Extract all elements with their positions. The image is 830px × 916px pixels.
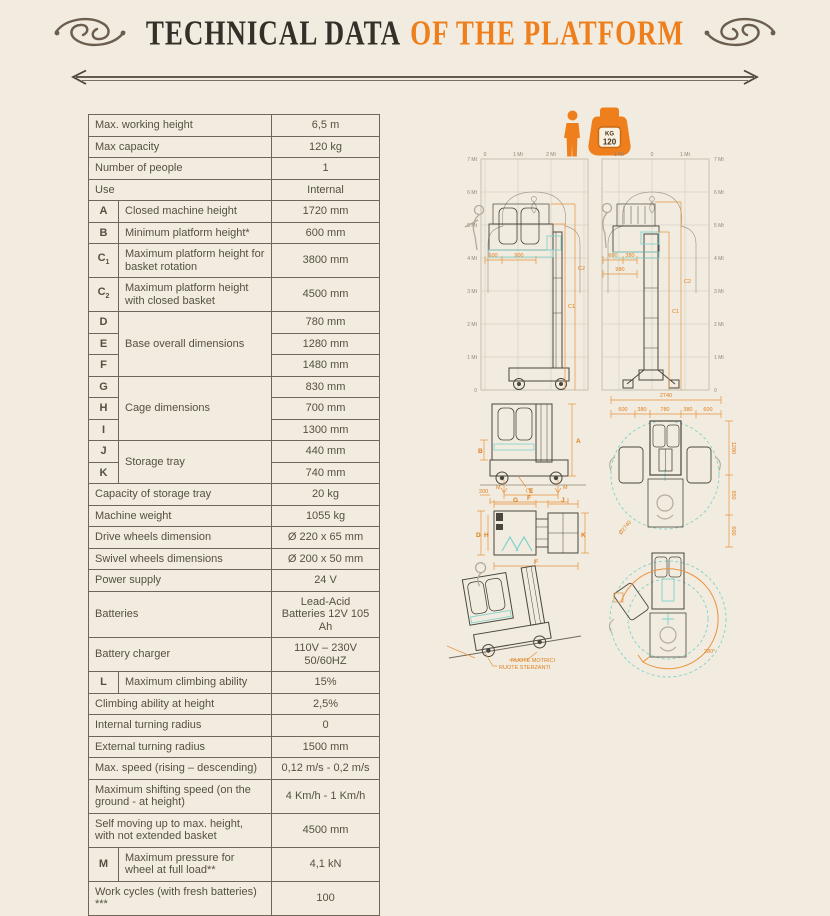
scale-labels: 0 1 Mt 2 Mt 7 Mt 6 Mt 5 Mt 4 Mt 3 Mt 2 M…	[467, 152, 556, 394]
dim-label: C1	[672, 309, 679, 315]
row-value: 700 mm	[272, 398, 380, 420]
flourish-right-icon	[700, 14, 780, 52]
row-value: 440 mm	[272, 441, 380, 463]
svg-text:6 Mt: 6 Mt	[467, 190, 477, 196]
elevation-side-diagram: 0 1 Mt 2 Mt 7 Mt 6 Mt 5 Mt 4 Mt 3 Mt 2 M…	[455, 148, 595, 400]
spec-row: Capacity of storage tray20 kg	[89, 484, 380, 506]
spec-row: AClosed machine height1720 mm	[89, 201, 380, 223]
row-label: Battery charger	[89, 638, 272, 672]
rotation-angle-label: 280°	[704, 649, 715, 655]
dim-label: 600	[608, 253, 617, 259]
row-letter: C2	[89, 278, 119, 312]
row-label: Batteries	[89, 591, 272, 638]
grid	[481, 159, 588, 390]
row-label: Max. speed (rising – descending)	[89, 758, 272, 780]
dim-label: G	[513, 497, 518, 504]
spec-row: Climbing ability at height2,5%	[89, 693, 380, 715]
machine-front-drawing	[603, 204, 680, 389]
row-label: Self moving up to max. height, with not …	[89, 813, 272, 847]
svg-text:4 Mt: 4 Mt	[467, 256, 477, 262]
machine-side-drawing	[465, 204, 569, 390]
spec-row: Maximum shifting speed (on the ground - …	[89, 779, 380, 813]
spec-row: Power supply24 V	[89, 570, 380, 592]
row-label: Power supply	[89, 570, 272, 592]
dim-label: 980	[615, 267, 624, 273]
row-value: 780 mm	[272, 312, 380, 334]
row-value: 1480 mm	[272, 355, 380, 377]
row-value: 740 mm	[272, 462, 380, 484]
front-view-diagram: A B M M (*) 200 E F	[478, 396, 590, 504]
dim-label: 380	[683, 407, 692, 413]
row-value: 0	[272, 715, 380, 737]
spec-row: C2Maximum platform height with closed ba…	[89, 278, 380, 312]
row-value: 1280 mm	[272, 333, 380, 355]
spec-row: Swivel wheels dimensionsØ 200 x 50 mm	[89, 548, 380, 570]
spec-row: Max. working height6,5 m	[89, 115, 380, 137]
row-value: Lead-Acid Batteries 12V 105 Ah	[272, 591, 380, 638]
spec-row: DBase overall dimensions780 mm	[89, 312, 380, 334]
grid	[602, 159, 709, 390]
row-label: Work cycles (with fresh batteries) ***	[89, 881, 272, 915]
divider-arrow-line	[60, 68, 770, 88]
row-label: Drive wheels dimension	[89, 527, 272, 549]
svg-text:1 Mt: 1 Mt	[467, 355, 477, 361]
svg-text:3 Mt: 3 Mt	[467, 289, 477, 295]
row-label: Storage tray	[119, 441, 272, 484]
row-value: 4500 mm	[272, 278, 380, 312]
spec-row: MMaximum pressure for wheel at full load…	[89, 847, 380, 881]
spec-row: Max. speed (rising – descending)0,12 m/s…	[89, 758, 380, 780]
row-label: Minimum platform height*	[119, 222, 272, 244]
slope-view-diagram: RUOTE MOTRICI RUOTE STERZANTI	[447, 560, 585, 672]
dim-label: H	[484, 532, 489, 539]
row-letter: A	[89, 201, 119, 223]
svg-text:4 Mt: 4 Mt	[714, 256, 724, 262]
dim-label: E	[529, 488, 534, 495]
row-label: Maximum shifting speed (on the ground - …	[89, 779, 272, 813]
row-label: Swivel wheels dimensions	[89, 548, 272, 570]
svg-text:0: 0	[651, 152, 654, 158]
dim-label: 900	[514, 253, 523, 259]
row-value: 1500 mm	[272, 736, 380, 758]
row-letter: D	[89, 312, 119, 334]
spec-row: Self moving up to max. height, with not …	[89, 813, 380, 847]
spec-row: UseInternal	[89, 179, 380, 201]
row-label: Capacity of storage tray	[89, 484, 272, 506]
dimension-lines	[603, 202, 681, 390]
row-label: Max. working height	[89, 115, 272, 137]
spec-row: BatteriesLead-Acid Batteries 12V 105 Ah	[89, 591, 380, 638]
dim-label: 780	[660, 407, 669, 413]
svg-text:6 Mt: 6 Mt	[714, 190, 724, 196]
row-value: 120 kg	[272, 136, 380, 158]
row-label: Maximum pressure for wheel at full load*…	[119, 847, 272, 881]
row-label: Maximum platform height with closed bask…	[119, 278, 272, 312]
spec-table-body: Max. working height6,5 mMax capacity120 …	[89, 115, 380, 916]
row-value: 1055 kg	[272, 505, 380, 527]
svg-text:1 Mt: 1 Mt	[714, 355, 724, 361]
row-letter: C1	[89, 244, 119, 278]
dim-label: K	[581, 532, 586, 539]
elevation-front-diagram: 1 Mt 0 1 Mt 7 Mt 6 Mt 5 Mt 4 Mt 3 Mt 2 M…	[597, 148, 735, 400]
dim-label: C2	[578, 266, 585, 272]
spec-row: Drive wheels dimensionØ 220 x 65 mm	[89, 527, 380, 549]
row-letter: L	[89, 672, 119, 694]
basket-rotation-diagram: 280°	[594, 549, 736, 687]
row-value: 4500 mm	[272, 813, 380, 847]
row-label: Internal turning radius	[89, 715, 272, 737]
row-value: Internal	[272, 179, 380, 201]
dim-label: 200	[479, 489, 488, 495]
row-value: Ø 220 x 65 mm	[272, 527, 380, 549]
spec-row: Work cycles (with fresh batteries) ***10…	[89, 881, 380, 915]
page-title: TECHNICAL DATAOF THE PLATFORM	[146, 13, 684, 53]
dim-label: M	[496, 485, 501, 491]
row-letter: J	[89, 441, 119, 463]
drive-wheels-label: RUOTE MOTRICI	[511, 658, 555, 664]
dim-label: 950	[730, 490, 736, 499]
row-value: 100	[272, 881, 380, 915]
row-letter: E	[89, 333, 119, 355]
row-letter: H	[89, 398, 119, 420]
svg-text:2 Mt: 2 Mt	[546, 152, 556, 158]
dim-label: C1	[568, 304, 575, 310]
svg-text:5 Mt: 5 Mt	[714, 223, 724, 229]
svg-text:0: 0	[484, 152, 487, 158]
dim-label: 600	[703, 407, 712, 413]
row-label: External turning radius	[89, 736, 272, 758]
machine-drawing	[494, 511, 578, 555]
spec-row: LMaximum climbing ability15%	[89, 672, 380, 694]
row-label: Closed machine height	[119, 201, 272, 223]
row-letter: F	[89, 355, 119, 377]
spec-row: Max capacity120 kg	[89, 136, 380, 158]
row-value: 830 mm	[272, 376, 380, 398]
row-letter: B	[89, 222, 119, 244]
row-value: 600 mm	[272, 222, 380, 244]
row-letter: G	[89, 376, 119, 398]
title-part-black: TECHNICAL DATA	[146, 13, 401, 52]
dim-label: 380	[625, 253, 634, 259]
svg-text:2 Mt: 2 Mt	[714, 322, 724, 328]
dim-label: B	[478, 448, 483, 455]
row-letter: M	[89, 847, 119, 881]
spec-row: C1Maximum platform height for basket rot…	[89, 244, 380, 278]
row-value: 2,5%	[272, 693, 380, 715]
row-letter: K	[89, 462, 119, 484]
svg-text:7 Mt: 7 Mt	[467, 157, 477, 163]
hook-ornament	[532, 197, 537, 214]
row-letter: I	[89, 419, 119, 441]
svg-text:0: 0	[474, 388, 477, 394]
row-label: Max capacity	[89, 136, 272, 158]
spec-row: Battery charger110V – 230V 50/60HZ	[89, 638, 380, 672]
spec-row: BMinimum platform height*600 mm	[89, 222, 380, 244]
spec-row: JStorage tray440 mm	[89, 441, 380, 463]
page-header: TECHNICAL DATAOF THE PLATFORM	[0, 14, 830, 52]
row-label: Climbing ability at height	[89, 693, 272, 715]
steering-wheels-label: RUOTE STERZANTI	[499, 665, 551, 671]
spec-table: Max. working height6,5 mMax capacity120 …	[88, 114, 380, 916]
svg-text:7 Mt: 7 Mt	[714, 157, 724, 163]
flourish-left-icon	[50, 14, 130, 52]
weight-value-label: 120	[603, 138, 617, 147]
dim-label: J	[561, 497, 565, 504]
row-value: 6,5 m	[272, 115, 380, 137]
spec-row: External turning radius1500 mm	[89, 736, 380, 758]
spec-row: Internal turning radius0	[89, 715, 380, 737]
row-value: 1	[272, 158, 380, 180]
dim-label: M	[563, 485, 568, 491]
dim-label: 600	[488, 253, 497, 259]
row-value: 20 kg	[272, 484, 380, 506]
svg-text:1 Mt: 1 Mt	[513, 152, 523, 158]
svg-text:2 Mt: 2 Mt	[467, 322, 477, 328]
svg-text:5 Mt: 5 Mt	[467, 223, 477, 229]
row-value: 24 V	[272, 570, 380, 592]
spec-row: GCage dimensions830 mm	[89, 376, 380, 398]
svg-text:3 Mt: 3 Mt	[714, 289, 724, 295]
row-value: 15%	[272, 672, 380, 694]
row-label: Maximum platform height for basket rotat…	[119, 244, 272, 278]
row-label: Number of people	[89, 158, 272, 180]
turning-radius-diagram: 2740 600 380 780 380 600 1280 950 600 Ø2…	[591, 387, 739, 573]
dim-label: 1280	[730, 442, 736, 454]
machine-drawing	[480, 404, 586, 485]
row-value: 4 Km/h - 1 Km/h	[272, 779, 380, 813]
row-value: 4,1 kN	[272, 847, 380, 881]
row-label: Cage dimensions	[119, 376, 272, 441]
row-label: Base overall dimensions	[119, 312, 272, 377]
spec-row: Number of people1	[89, 158, 380, 180]
row-value: 1720 mm	[272, 201, 380, 223]
dim-label: A	[576, 438, 581, 445]
dim-label: D	[476, 532, 481, 539]
dim-label: Ø2740	[618, 520, 633, 537]
dim-label: 380	[637, 407, 646, 413]
row-label: Machine weight	[89, 505, 272, 527]
dim-label: 600	[730, 526, 736, 535]
row-value: Ø 200 x 50 mm	[272, 548, 380, 570]
row-label: Maximum climbing ability	[119, 672, 272, 694]
spec-row: Machine weight1055 kg	[89, 505, 380, 527]
dim-label: C2	[684, 279, 691, 285]
row-value: 3800 mm	[272, 244, 380, 278]
row-value: 1300 mm	[272, 419, 380, 441]
row-label: Use	[89, 179, 272, 201]
dim-label: 600	[618, 407, 627, 413]
svg-text:1 Mt: 1 Mt	[614, 152, 624, 158]
title-part-orange: OF THE PLATFORM	[410, 13, 684, 52]
row-value: 0,12 m/s - 0,2 m/s	[272, 758, 380, 780]
machine-drawing	[460, 560, 552, 659]
dim-label: 2740	[660, 393, 672, 399]
svg-text:1 Mt: 1 Mt	[680, 152, 690, 158]
row-value: 110V – 230V 50/60HZ	[272, 638, 380, 672]
